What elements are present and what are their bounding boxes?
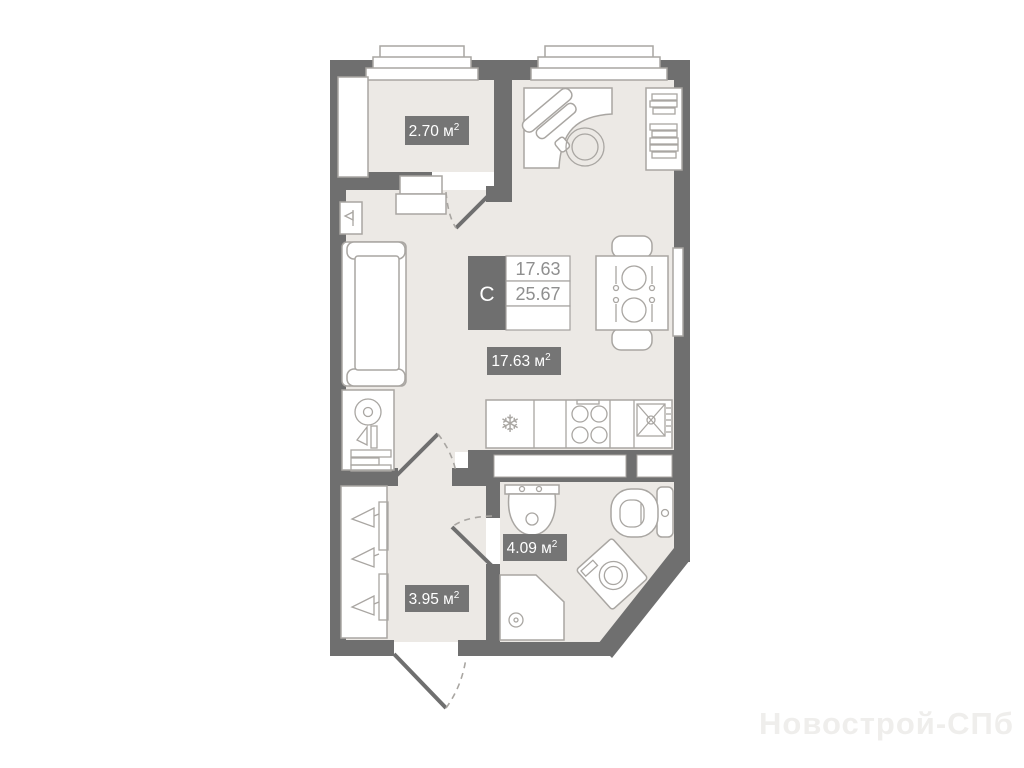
balcony-dresser bbox=[396, 176, 446, 214]
empty-cell bbox=[506, 306, 570, 330]
door-gap-floor bbox=[398, 468, 455, 488]
dining-chair-top bbox=[612, 236, 652, 258]
svg-text:17.63 м2: 17.63 м2 bbox=[491, 352, 551, 370]
area-badge-balcony: 2.70 м2 bbox=[405, 116, 469, 145]
type-label: C bbox=[479, 283, 494, 306]
radiator-right-wall bbox=[673, 248, 683, 336]
floorplan-canvas: ❄ bbox=[0, 0, 1024, 768]
door-entrance bbox=[394, 654, 466, 708]
wardrobe bbox=[341, 486, 388, 638]
apartment-info-box: C 17.63 25.67 bbox=[468, 256, 570, 330]
wall-bath-lower bbox=[486, 564, 500, 644]
area-badge-hallway: 3.95 м2 bbox=[405, 585, 469, 612]
side-table bbox=[340, 202, 362, 234]
sofa bbox=[342, 242, 406, 386]
dining-chair-bottom bbox=[612, 328, 652, 350]
wall-bath-bottom bbox=[478, 642, 610, 656]
total-area-value: 25.67 bbox=[515, 284, 560, 304]
kitchen-counter: ❄ bbox=[486, 400, 672, 448]
radiator-shelf-top-right bbox=[646, 88, 682, 170]
window-balcony-left bbox=[338, 77, 368, 177]
window-top-left bbox=[366, 46, 478, 80]
window-top-right bbox=[531, 46, 667, 80]
storage-cabinet bbox=[342, 390, 394, 471]
wall-niche-right bbox=[637, 455, 672, 477]
svg-text:4.09 м2: 4.09 м2 bbox=[507, 539, 558, 557]
svg-text:3.95 м2: 3.95 м2 bbox=[409, 590, 460, 608]
wall-balcony-right bbox=[494, 60, 512, 194]
svg-text:2.70 м2: 2.70 м2 bbox=[409, 122, 460, 140]
wall-hall-bottom bbox=[330, 640, 394, 656]
snowflake-icon: ❄ bbox=[500, 411, 520, 438]
watermark-text: Новострой-СПб bbox=[759, 706, 1014, 741]
floor-plan-svg: ❄ bbox=[0, 0, 1024, 768]
area-badge-bathroom: 4.09 м2 bbox=[503, 534, 567, 561]
wall-bath-upper bbox=[486, 482, 500, 518]
wall-niche-left bbox=[494, 455, 626, 477]
area-badge-living: 17.63 м2 bbox=[487, 347, 561, 375]
living-area-value: 17.63 bbox=[515, 259, 560, 279]
toilet bbox=[611, 487, 673, 537]
